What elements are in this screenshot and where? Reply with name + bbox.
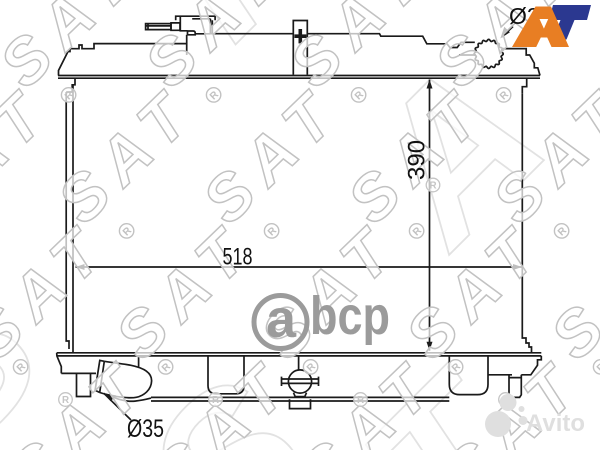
svg-text:518: 518: [223, 244, 253, 271]
svg-text:R: R: [357, 395, 364, 406]
svg-text:R: R: [62, 395, 69, 406]
svg-text:bcp: bcp: [310, 286, 390, 346]
svg-text:Ø35: Ø35: [127, 415, 164, 443]
svg-text:R: R: [212, 395, 219, 406]
svg-text:Avito: Avito: [526, 410, 585, 437]
svg-text:390: 390: [404, 140, 431, 180]
svg-text:a: a: [266, 289, 297, 349]
svg-text:R: R: [429, 181, 436, 192]
